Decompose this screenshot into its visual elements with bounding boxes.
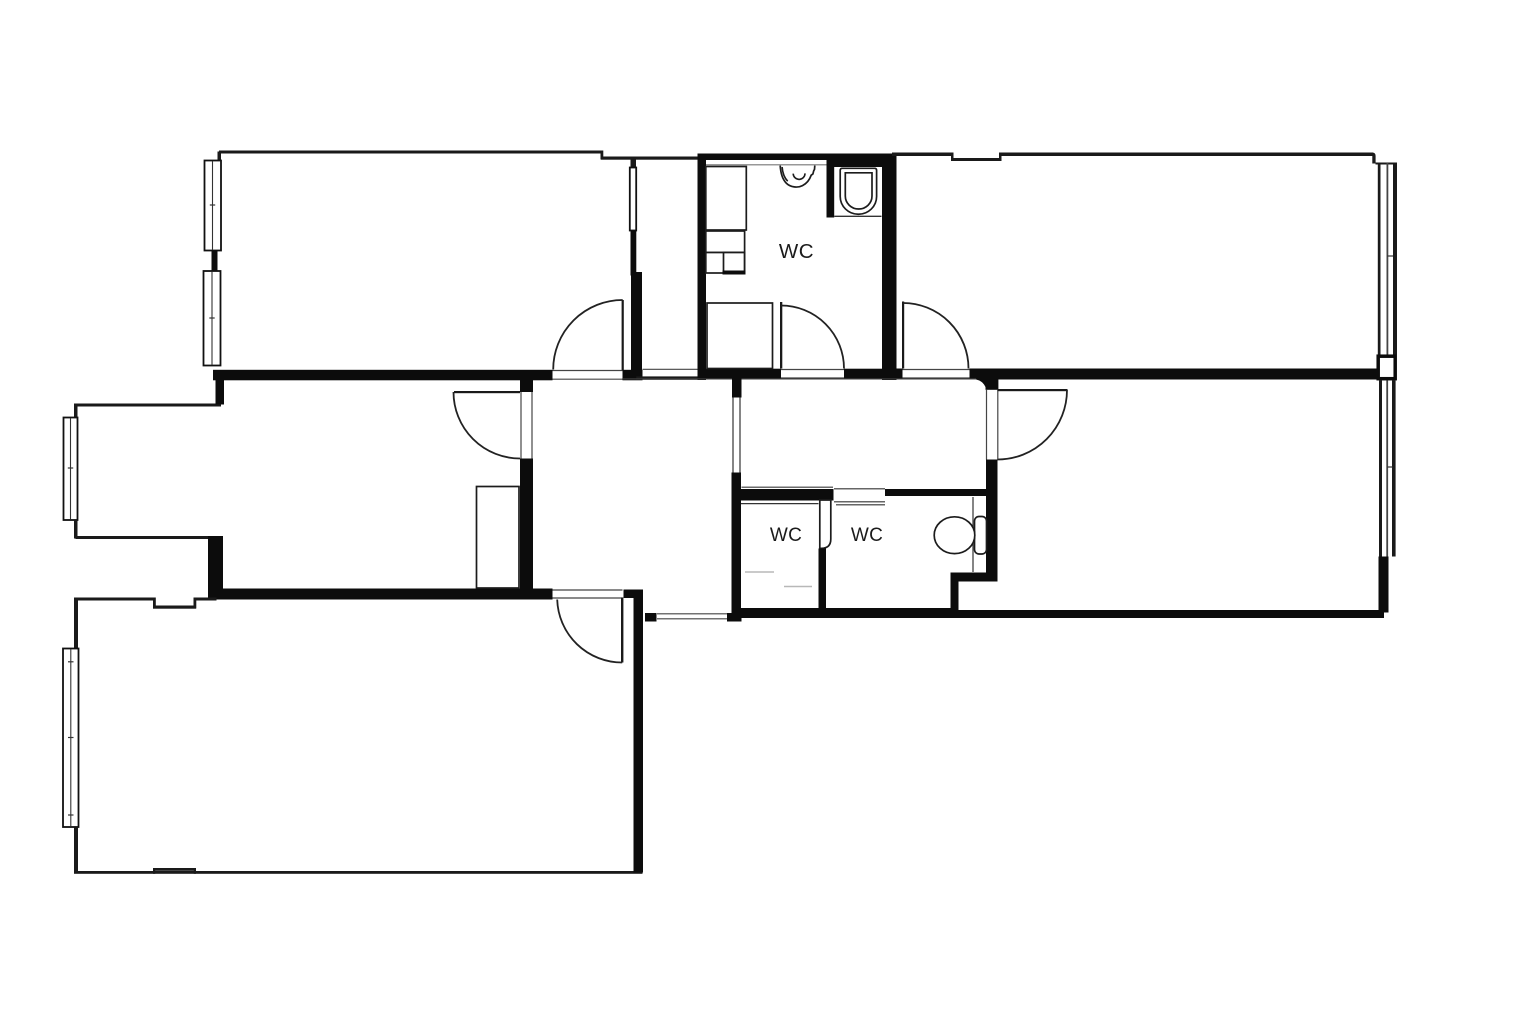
svg-text:WC: WC [779,240,814,263]
svg-text:WC: WC [770,525,802,546]
svg-text:WC: WC [851,525,883,546]
